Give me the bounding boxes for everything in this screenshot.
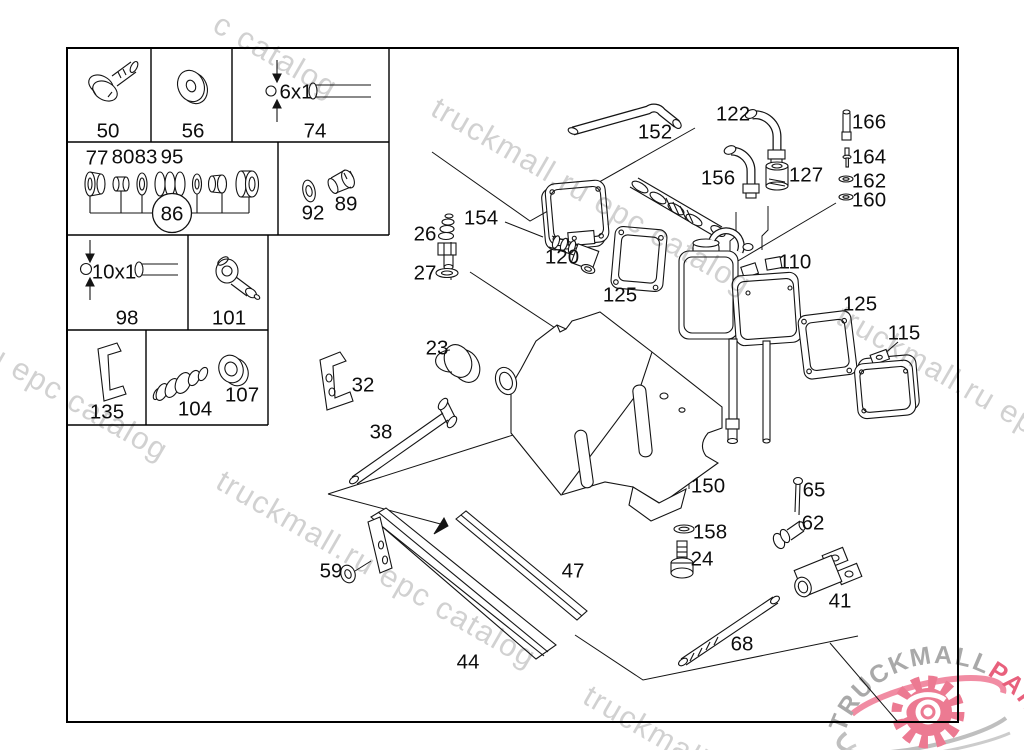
catalog-diagram-page: TRUCKMALLPARTS xyxy=(0,0,1024,750)
part-38-sketch xyxy=(348,397,458,486)
part-27-sketch xyxy=(436,269,458,278)
part-164-sketch xyxy=(843,148,851,167)
exploded-parts-diagram: TRUCKMALLPARTS xyxy=(0,0,1024,750)
part-162-sketch xyxy=(839,176,853,182)
callout-125: 125 xyxy=(603,284,637,307)
callout-125: 125 xyxy=(843,293,877,316)
part-115-sketch xyxy=(853,347,921,419)
callout-41: 41 xyxy=(829,590,852,613)
part-50-sketch xyxy=(85,60,139,105)
callout-158: 158 xyxy=(693,521,727,544)
part-135-sketch xyxy=(98,343,126,401)
callout-95: 95 xyxy=(161,146,184,169)
diameter-symbol-icon xyxy=(266,86,276,96)
callout-152: 152 xyxy=(638,121,672,144)
part-32-sketch xyxy=(320,352,353,410)
part-44-sketch xyxy=(368,508,556,659)
part-125-left-sketch xyxy=(610,226,667,292)
callout-77: 77 xyxy=(86,147,109,170)
part-160-sketch xyxy=(839,194,853,200)
callout-68: 68 xyxy=(731,633,754,656)
callout-92: 92 xyxy=(302,202,325,225)
part-166-sketch xyxy=(842,110,851,140)
callout-89: 89 xyxy=(335,193,358,216)
callout-65: 65 xyxy=(803,479,826,502)
diameter-symbol-icon xyxy=(81,264,92,275)
callout-154: 154 xyxy=(464,207,498,230)
callout-107: 107 xyxy=(225,384,259,407)
part-tank-sketch xyxy=(492,312,722,504)
truckmall-parts-logo: TRUCKMALLPARTS xyxy=(824,641,1024,750)
callout-150: 150 xyxy=(691,475,725,498)
callout-44: 44 xyxy=(457,651,480,674)
part-158-sketch xyxy=(674,525,694,533)
part-120-sketch xyxy=(541,179,611,250)
callout-86: 86 xyxy=(161,203,184,226)
callout-166: 166 xyxy=(852,111,886,134)
table-part-sketches xyxy=(81,60,372,402)
callout-50: 50 xyxy=(97,120,120,143)
callout-32: 32 xyxy=(352,374,375,397)
callout-56: 56 xyxy=(182,120,205,143)
callout-164: 164 xyxy=(852,146,886,169)
callout-62: 62 xyxy=(802,512,825,535)
part-127-sketch xyxy=(766,162,788,190)
callout-27: 27 xyxy=(414,262,437,285)
callout-24: 24 xyxy=(691,548,714,571)
callout-38: 38 xyxy=(370,421,393,444)
callout-23: 23 xyxy=(426,337,449,360)
callout-160: 160 xyxy=(852,189,886,212)
callout-10x1: 10x1 xyxy=(92,261,136,284)
callout-104: 104 xyxy=(178,398,212,421)
main-part-sketches xyxy=(320,108,920,667)
callout-74: 74 xyxy=(304,120,327,143)
callout-156: 156 xyxy=(701,167,735,190)
callout-83: 83 xyxy=(135,146,158,169)
callout-122: 122 xyxy=(716,103,750,126)
callout-135: 135 xyxy=(90,401,124,424)
callout-110: 110 xyxy=(779,251,812,274)
part-56-sketch xyxy=(173,66,212,107)
callout-6x1: 6x1 xyxy=(279,81,312,104)
callout-101: 101 xyxy=(212,307,246,330)
callout-127: 127 xyxy=(789,164,823,187)
callout-80: 80 xyxy=(112,146,135,169)
part-101-sketch xyxy=(216,255,261,300)
part-125-right-sketch xyxy=(797,310,857,380)
callout-47: 47 xyxy=(562,560,585,583)
part-68-sketch xyxy=(677,595,781,668)
callout-120: 120 xyxy=(545,246,579,269)
callout-59: 59 xyxy=(320,560,343,583)
gear-icon xyxy=(898,682,958,742)
part-26-sketch xyxy=(438,214,456,270)
callout-26: 26 xyxy=(414,223,437,246)
part-65-sketch xyxy=(794,478,803,516)
callout-98: 98 xyxy=(116,307,139,330)
callout-115: 115 xyxy=(888,322,921,345)
